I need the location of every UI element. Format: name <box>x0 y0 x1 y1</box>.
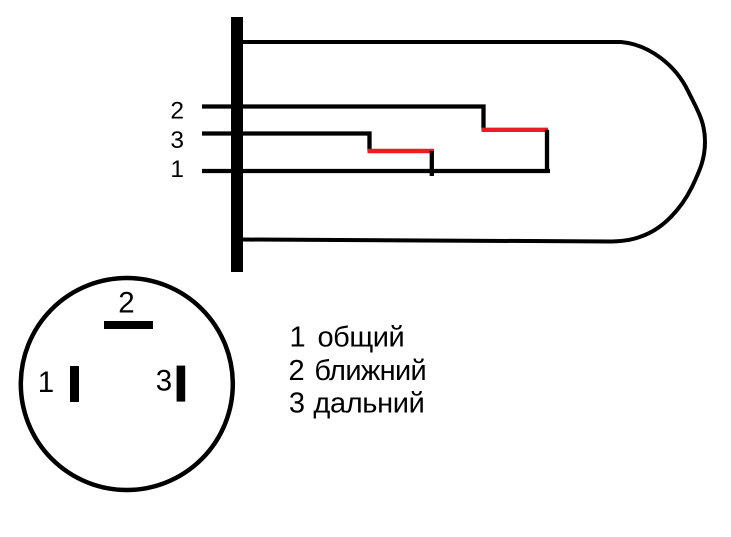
svg-text:2: 2 <box>289 355 305 387</box>
svg-text:1: 1 <box>170 156 184 183</box>
svg-text:общий: общий <box>318 322 405 354</box>
svg-text:ближний: ближний <box>314 355 426 387</box>
svg-text:3: 3 <box>289 388 305 420</box>
svg-text:1: 1 <box>38 366 54 399</box>
svg-text:1: 1 <box>290 322 306 354</box>
svg-text:3: 3 <box>156 365 172 398</box>
svg-text:2: 2 <box>118 286 134 319</box>
svg-text:3: 3 <box>170 127 184 154</box>
svg-text:2: 2 <box>170 98 184 125</box>
svg-text:дальний: дальний <box>313 388 424 420</box>
